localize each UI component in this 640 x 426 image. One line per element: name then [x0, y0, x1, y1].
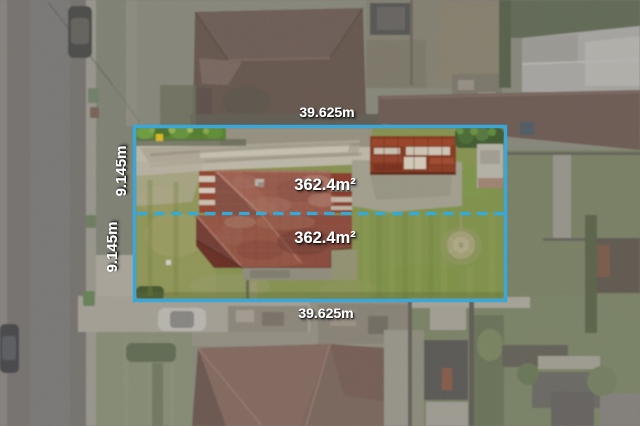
svg-text:362.4m²: 362.4m² — [294, 176, 356, 194]
svg-text:39.625m: 39.625m — [298, 305, 353, 321]
svg-text:39.625m: 39.625m — [299, 104, 354, 120]
svg-text:362.4m²: 362.4m² — [294, 229, 356, 247]
svg-text:9.145m: 9.145m — [104, 222, 121, 273]
svg-text:9.145m: 9.145m — [113, 146, 130, 197]
